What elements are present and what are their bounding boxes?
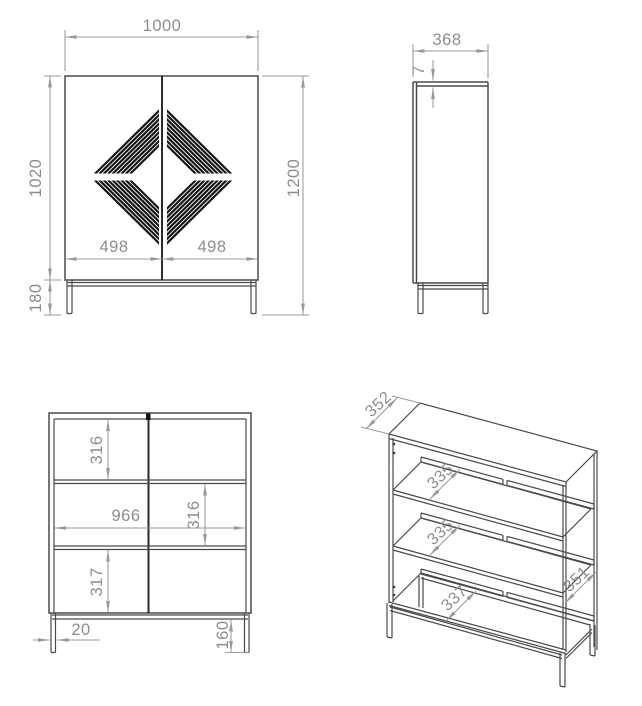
extension-line (361, 427, 389, 434)
diamond-stripe (101, 115, 226, 238)
front-legs (67, 280, 256, 314)
diamond-stripe (105, 120, 221, 234)
dim-inner-width: 966 (111, 507, 140, 525)
dim-middle-compartment: 316 (185, 500, 203, 529)
dim-top-compartment: 316 (88, 435, 106, 464)
dim-front-total-height: 1200 (285, 159, 303, 198)
diamond-stripe (92, 107, 234, 247)
dim-side-depth: 368 (432, 31, 461, 49)
shelves-3d (393, 462, 591, 597)
perspective-view: 352 335 335 337 351 (362, 388, 597, 687)
dim-leg-width: 20 (71, 621, 90, 639)
furniture-dimension-drawing: 1000 1020 1200 498 498 180 368 7 316 966… (0, 0, 642, 706)
dim-leg-clearance: 160 (214, 620, 232, 649)
dim-door-left: 498 (99, 238, 128, 256)
technical-drawing-sheet: 1000 1020 1200 498 498 180 368 7 316 966… (0, 0, 642, 706)
side-legs (418, 283, 488, 314)
divider-fixing-mark (146, 414, 151, 421)
shelf-3d (393, 462, 591, 541)
diamond-stripe (114, 128, 212, 225)
dim-front-width: 1000 (143, 17, 182, 35)
dim-bottom-compartment: 317 (88, 567, 106, 596)
internal-front-view: 316 966 316 317 20 160 (49, 413, 251, 653)
shelf-lines (54, 480, 246, 550)
diamond-stripe (96, 111, 230, 243)
dimension-lines (33, 30, 596, 653)
dim-front-body-height: 1020 (27, 159, 45, 198)
dim-front-leg-height: 180 (27, 283, 45, 312)
dim-door-right: 498 (197, 238, 226, 256)
front-view: 1000 1020 1200 498 498 180 (27, 17, 303, 314)
diamond-stripe (109, 124, 216, 230)
side-view: 368 7 (410, 31, 488, 314)
diamond-pattern (92, 107, 234, 247)
